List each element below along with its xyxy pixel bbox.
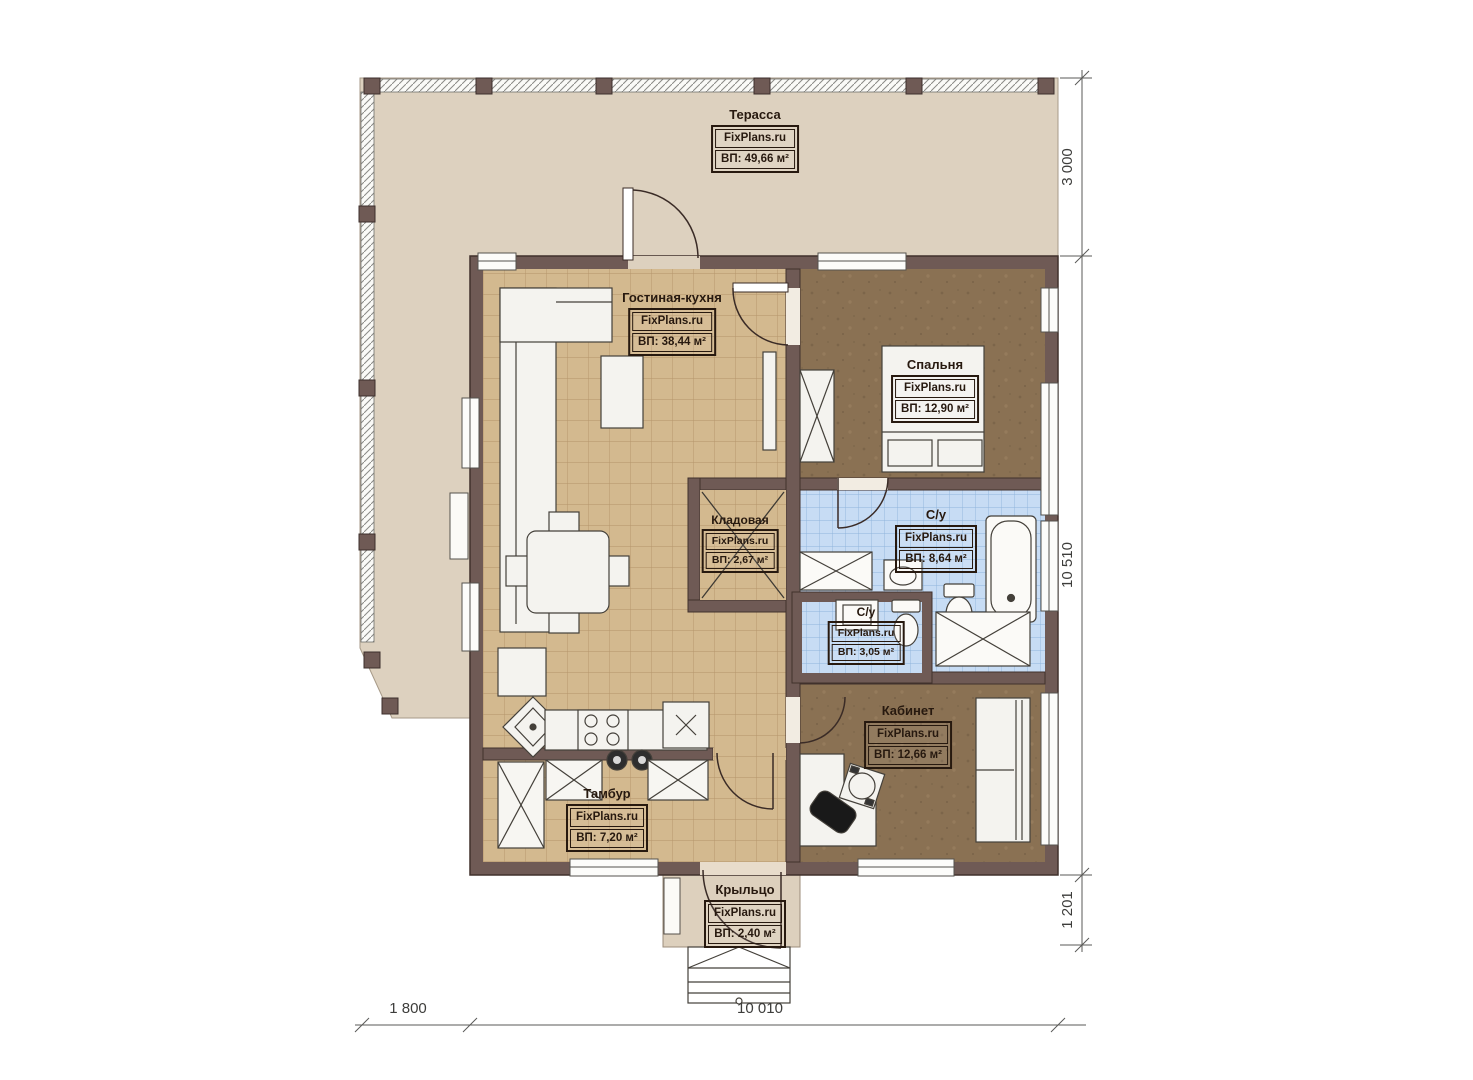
stool: [849, 773, 875, 799]
room-info-box: FixPlans.ru ВП: 3,05 м²: [828, 621, 905, 665]
brand-site: FixPlans.ru: [868, 725, 948, 744]
dim-terrace-depth: 3 000: [1059, 148, 1076, 186]
brand-site: FixPlans.ru: [632, 312, 712, 331]
room-area: ВП: 12,66 м²: [868, 746, 948, 765]
kitchen-corner-counter: [498, 648, 546, 696]
room-area: ВП: 49,66 м²: [715, 150, 795, 169]
room-area: ВП: 12,90 м²: [895, 400, 975, 419]
room-area: ВП: 38,44 м²: [632, 333, 712, 352]
room-name: С/у: [828, 606, 905, 619]
floor-plan-canvas: 3 000 10 510 1 201 1 800 10 010 Терасса …: [0, 0, 1473, 1080]
room-info-box: FixPlans.ru ВП: 12,90 м²: [891, 375, 979, 423]
room-info-box: FixPlans.ru ВП: 38,44 м²: [628, 308, 716, 356]
coffee-table: [601, 356, 643, 428]
pillow: [888, 440, 932, 466]
dining-chair: [607, 556, 629, 586]
dim-house-depth: 10 510: [1059, 542, 1076, 588]
room-name: Кабинет: [864, 704, 952, 719]
brand-site: FixPlans.ru: [708, 904, 782, 923]
room-area: ВП: 8,64 м²: [899, 550, 973, 569]
tv-unit: [763, 352, 776, 450]
toilet-tank: [944, 584, 974, 597]
terrace-railing-left: [361, 92, 374, 642]
brand-site: FixPlans.ru: [895, 379, 975, 398]
sofa-chaise: [500, 288, 612, 342]
room-area: ВП: 7,20 м²: [570, 829, 644, 848]
pillow: [938, 440, 982, 466]
brand-site: FixPlans.ru: [832, 625, 901, 642]
dim-terrace-overhang: 1 800: [389, 1000, 427, 1017]
room-name: Кладовая: [702, 514, 779, 527]
room-area: ВП: 3,05 м²: [832, 644, 901, 661]
room-label-porch: Крыльцо FixPlans.ru ВП: 2,40 м²: [704, 883, 786, 948]
brand-site: FixPlans.ru: [715, 129, 795, 148]
room-label-office: Кабинет FixPlans.ru ВП: 12,66 м²: [864, 704, 952, 769]
porch-column: [664, 878, 680, 934]
room-info-box: FixPlans.ru ВП: 8,64 м²: [895, 525, 977, 573]
room-label-terrace: Терасса FixPlans.ru ВП: 49,66 м²: [711, 108, 799, 173]
terrace-railing-top: [366, 79, 1046, 92]
porch-steps: [688, 947, 790, 1004]
dim-porch-depth: 1 201: [1059, 891, 1076, 929]
boiler-unit: [450, 493, 468, 559]
room-name: С/у: [895, 508, 977, 523]
room-info-box: FixPlans.ru ВП: 7,20 м²: [566, 804, 648, 852]
dining-table: [527, 531, 609, 613]
room-info-box: FixPlans.ru ВП: 2,40 м²: [704, 900, 786, 948]
stove: [578, 710, 628, 750]
room-name: Гостиная-кухня: [622, 291, 722, 306]
room-name: Терасса: [711, 108, 799, 123]
dining-chair: [506, 556, 528, 586]
room-name: Спальня: [891, 358, 979, 373]
room-label-bathroom: С/у FixPlans.ru ВП: 8,64 м²: [895, 508, 977, 573]
room-info-box: FixPlans.ru ВП: 2,67 м²: [702, 529, 779, 573]
brand-site: FixPlans.ru: [570, 808, 644, 827]
room-label-storage: Кладовая FixPlans.ru ВП: 2,67 м²: [702, 514, 779, 573]
room-area: ВП: 2,67 м²: [706, 552, 775, 569]
room-label-bedroom: Спальня FixPlans.ru ВП: 12,90 м²: [891, 358, 979, 423]
room-info-box: FixPlans.ru ВП: 49,66 м²: [711, 125, 799, 173]
dim-house-width: 10 010: [737, 1000, 783, 1017]
brand-site: FixPlans.ru: [899, 529, 973, 548]
room-info-box: FixPlans.ru ВП: 12,66 м²: [864, 721, 952, 769]
brand-site: FixPlans.ru: [706, 533, 775, 550]
dining-chair: [549, 611, 579, 633]
room-label-living-kitchen: Гостиная-кухня FixPlans.ru ВП: 38,44 м²: [622, 291, 722, 356]
room-label-vestibule: Тамбур FixPlans.ru ВП: 7,20 м²: [566, 787, 648, 852]
room-area: ВП: 2,40 м²: [708, 925, 782, 944]
bathtub: [986, 516, 1036, 622]
room-label-wc: С/у FixPlans.ru ВП: 3,05 м²: [828, 606, 905, 665]
room-name: Тамбур: [566, 787, 648, 802]
room-name: Крыльцо: [704, 883, 786, 898]
